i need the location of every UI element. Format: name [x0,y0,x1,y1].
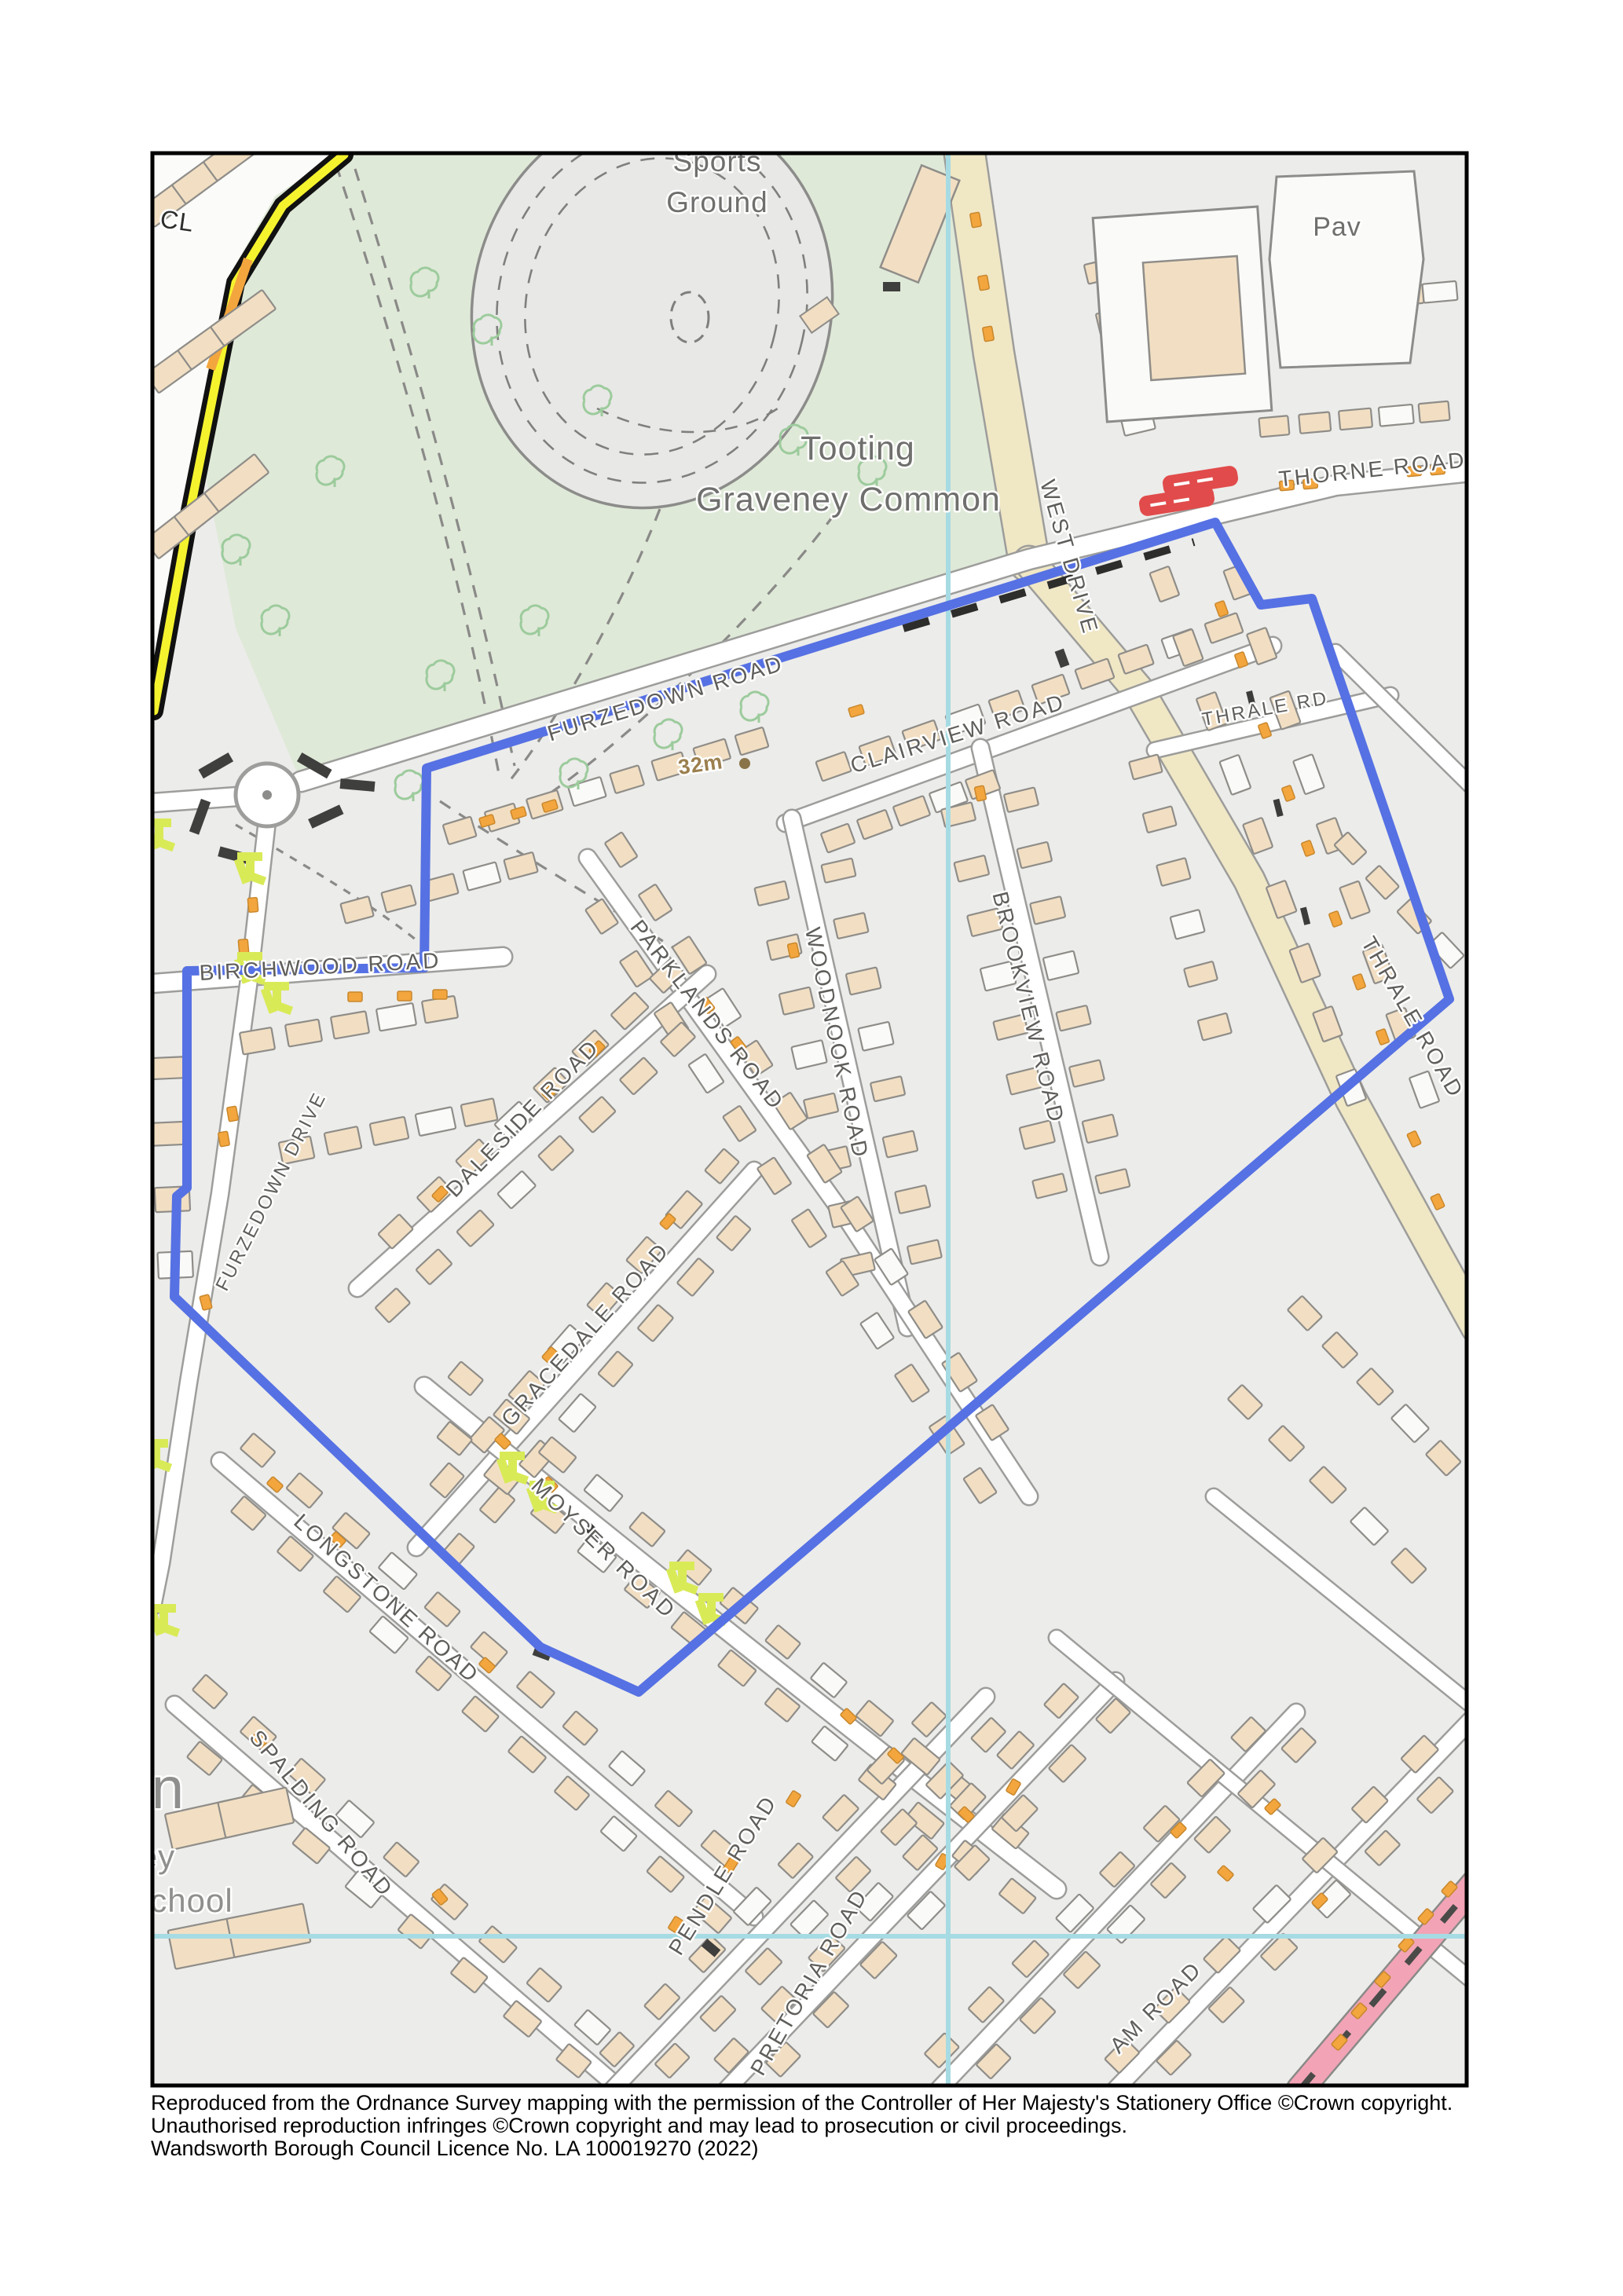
orange-marker-icon [218,1131,230,1147]
map-canvas: SportsGroundTootingGraveney CommonPavFUR… [0,0,1623,2296]
building [1299,412,1331,433]
building [1379,405,1414,427]
building [1339,408,1372,430]
building [1419,401,1450,423]
building [1422,281,1457,303]
attribution-line-3: Wandsworth Borough Council Licence No. L… [151,2137,1502,2160]
label-ground: Ground [666,186,768,218]
orange-marker-icon [983,326,995,342]
label-graveney-common: Graveney Common [696,481,1001,518]
orange-marker-icon [978,275,990,291]
orange-marker-icon [247,898,258,913]
building [331,1011,369,1038]
orange-marker-icon [433,990,447,999]
attribution-line-1: Reproduced from the Ordnance Survey mapp… [151,2092,1502,2115]
dark-marker-icon [883,282,900,291]
label-big-n: n [152,1756,185,1821]
orange-marker-icon [348,992,362,1002]
map-content: SportsGroundTootingGraveney CommonPavFUR… [139,68,1497,2089]
orange-marker-icon [970,212,982,228]
pav-building [1269,171,1423,368]
attribution: Reproduced from the Ordnance Survey mapp… [151,2092,1502,2160]
label-pav: Pav [1313,212,1361,242]
label-chool: chool [150,1882,233,1919]
label-tooting: Tooting [801,430,915,467]
orange-marker-icon [398,991,412,1001]
spot-height-dot [739,758,750,769]
building [422,996,458,1023]
building [1258,416,1289,437]
orange-marker-icon [227,1106,239,1122]
attribution-line-2: Unauthorised reproduction infringes ©Cro… [151,2115,1502,2137]
orange-marker-icon [238,939,249,954]
building [285,1020,322,1047]
building [152,1122,187,1146]
label-cl: CL [159,204,196,237]
building [240,1027,275,1055]
map-page: SportsGroundTootingGraveney CommonPavFUR… [0,0,1623,2296]
